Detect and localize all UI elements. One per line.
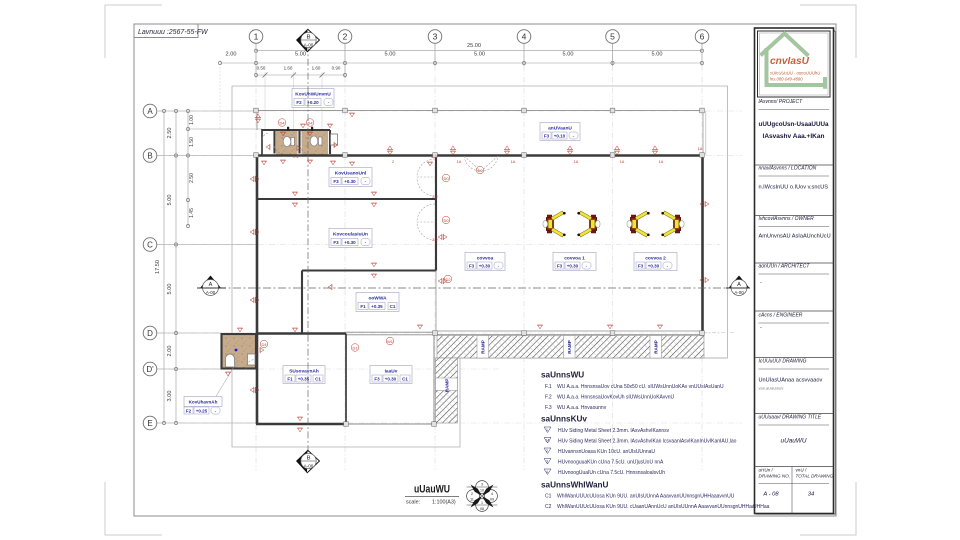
svg-text:uHUn /: uHUn /	[759, 468, 774, 473]
svg-text:uUauWU: uUauWU	[414, 484, 450, 496]
svg-text:vnU /: vnU /	[796, 468, 807, 473]
svg-text:uUauWU: uUauWU	[781, 438, 807, 445]
svg-text:1:100(A3): 1:100(A3)	[432, 500, 456, 506]
svg-text:scale:: scale:	[406, 500, 420, 506]
svg-text:F3: F3	[333, 240, 339, 245]
svg-text:UnUIasUAnaa acsvvaaov: UnUIasUAnaa acsvvaaov	[759, 378, 823, 384]
svg-text:aonUUn / ARCHITECT: aonUUn / ARCHITECT	[759, 264, 811, 270]
svg-text:D': D'	[146, 365, 154, 374]
svg-text:UHHaa: UHHaa	[753, 504, 770, 510]
svg-text:Lavnuuu :2567-55-FW: Lavnuuu :2567-55-FW	[138, 29, 209, 36]
svg-text:uUUuaav/ DRAWING TITLE: uUUuaav/ DRAWING TITLE	[759, 415, 822, 421]
svg-text:1.60: 1.60	[284, 66, 293, 71]
svg-text:-: -	[760, 280, 762, 286]
svg-text:RAMP: RAMP	[654, 340, 659, 354]
svg-text:3: 3	[433, 32, 438, 42]
svg-text:1A: 1A	[698, 147, 703, 151]
svg-text:1: 1	[481, 501, 483, 505]
svg-text:5.00: 5.00	[295, 52, 306, 58]
svg-text:0.50: 0.50	[257, 66, 266, 71]
svg-text:A-00: A-00	[206, 290, 216, 295]
svg-text:+0.20: +0.20	[307, 100, 319, 105]
svg-text:2.00: 2.00	[226, 52, 237, 58]
svg-text:WhIWanUUUcUUosa KUn 9UU. cUaan: WhIWanUUUcUUosa KUn 9UU. cUaanUAnnUcU an…	[557, 504, 773, 510]
svg-text:4: 4	[491, 492, 493, 496]
svg-text:3: 3	[481, 483, 483, 487]
svg-text:2-2: 2-2	[432, 238, 438, 242]
svg-text:2.50: 2.50	[167, 128, 173, 139]
svg-text:A-00: A-00	[304, 464, 314, 469]
svg-text:D0: D0	[443, 176, 449, 181]
svg-text:08: 08	[480, 507, 484, 511]
svg-text:n.IWcsInUU o.IUov v.sncUS: n.IWcsInUU o.IUov v.sncUS	[759, 185, 829, 191]
svg-text:cnvIasU: cnvIasU	[770, 55, 809, 67]
svg-text:1A: 1A	[511, 160, 516, 164]
svg-text:RAMP: RAMP	[567, 340, 572, 354]
svg-text:KovcoulasiuUn: KovcoulasiuUn	[333, 232, 368, 238]
svg-text:09: 09	[490, 498, 494, 502]
svg-text:25.00: 25.00	[467, 43, 481, 49]
svg-text:ooWWA: ooWWA	[368, 296, 387, 302]
svg-text:0.90: 0.90	[332, 66, 341, 71]
svg-text:D4: D4	[279, 121, 285, 126]
svg-text:A-00: A-00	[304, 43, 314, 48]
svg-text:5.00: 5.00	[167, 284, 173, 295]
svg-text:34: 34	[808, 492, 814, 498]
svg-text:A-00: A-00	[734, 290, 744, 295]
svg-text:3: 3	[546, 460, 548, 464]
svg-text:saUnnsWU: saUnnsWU	[541, 371, 584, 380]
svg-text:D: D	[147, 329, 153, 338]
svg-text:2: 2	[546, 449, 548, 453]
svg-text:saUnnsWhIWanU: saUnnsWhIWanU	[541, 481, 609, 490]
svg-text:F1: F1	[360, 304, 366, 309]
svg-text:lAsvnns/ PROJECT: lAsvnns/ PROJECT	[759, 99, 804, 105]
svg-text:2.50: 2.50	[189, 173, 195, 183]
svg-text:C1: C1	[390, 304, 396, 309]
svg-text:+0.30: +0.30	[344, 179, 356, 184]
svg-text:WU A.a.a. HnnsnsaUovKovUh sIUW: WU A.a.a. HnnsnsaUovKovUh sIUWsUnnUoKAvv…	[557, 395, 675, 401]
svg-text:+0.30: +0.30	[648, 264, 660, 269]
svg-text:nnavlAsvnns / LOCATION: nnavlAsvnns / LOCATION	[759, 166, 817, 172]
svg-text:+0.30: +0.30	[344, 240, 356, 245]
svg-text:IaaUv: IaaUv	[385, 369, 398, 375]
svg-text:WU A.a.a. Hnvaounnv: WU A.a.a. Hnvaounnv	[557, 405, 607, 411]
svg-text:5.00: 5.00	[474, 52, 485, 58]
svg-text:uUUgcoUsn-UsaaUUUa: uUUgcoUsn-UsaaUUUa	[759, 121, 829, 128]
svg-text:+0.25: +0.25	[196, 409, 208, 414]
svg-text:covvoa: covvoa	[477, 257, 494, 262]
svg-text:5.00: 5.00	[167, 195, 173, 206]
svg-text:1A: 1A	[574, 160, 579, 164]
svg-text:HUvnooguuaKUn cUna 7.5cU. unU]: HUvnooguuaKUn cUna 7.5cU. unU]usUoU nnA	[558, 460, 664, 466]
svg-text:HUvannsnUoasa KUn 10cU. anUIsU: HUvannsnUoasa KUn 10cU. anUIsUUnnaU	[558, 449, 655, 455]
svg-text:HUvnoogUuaIUn cUna 7.5cU. Hnns: HUvnoogUuaIUn cUna 7.5cU. HnnsnsaloalsvU…	[558, 470, 665, 476]
svg-text:F3: F3	[469, 264, 475, 269]
svg-text:1A: 1A	[659, 160, 664, 164]
svg-text:1A: 1A	[457, 160, 462, 164]
svg-text:2-2: 2-2	[293, 155, 299, 159]
svg-text:C1: C1	[315, 377, 321, 382]
svg-text:F.1: F.1	[545, 384, 552, 390]
svg-text:F3: F3	[333, 179, 339, 184]
svg-text:DRAWING NO.: DRAWING NO.	[759, 474, 791, 479]
svg-text:HUv Siding Metal Sheet 2.3mm.: HUv Siding Metal Sheet 2.3mm. lAsvAshvIK…	[558, 439, 737, 445]
svg-text:5: 5	[610, 32, 615, 42]
svg-text:C2: C2	[545, 504, 552, 510]
svg-text:F2: F2	[296, 100, 302, 105]
svg-text:C1: C1	[402, 377, 408, 382]
svg-text:RAMP: RAMP	[481, 340, 486, 354]
svg-text:1: 1	[546, 428, 548, 432]
svg-text:F.2: F.2	[545, 395, 552, 401]
svg-text:1.50: 1.50	[189, 137, 195, 147]
svg-text:F3: F3	[374, 377, 380, 382]
svg-text:+0.30: +0.30	[567, 264, 579, 269]
svg-text:saUnnsKUv: saUnnsKUv	[541, 415, 587, 424]
svg-text:6: 6	[700, 32, 705, 42]
svg-text:A: A	[147, 107, 153, 116]
svg-text:D0: D0	[477, 168, 483, 173]
svg-text:lAsvashv Aaa.+IKan: lAsvashv Aaa.+IKan	[763, 133, 825, 140]
svg-text:covvoa 2: covvoa 2	[645, 256, 666, 262]
svg-text:covvoa 1: covvoa 1	[564, 256, 585, 262]
svg-text:WhIWanUUUcUUosa KUn 9UU. anUIs: WhIWanUUUcUUosa KUn 9UU. anUIsUUnnA Aaav…	[557, 494, 735, 500]
svg-text:HUv Siding Metal Sheet 2.3mm.: HUv Siding Metal Sheet 2.3mm. lAsvAshvIK…	[558, 428, 670, 434]
svg-text:4: 4	[546, 470, 548, 474]
svg-text:RAMP: RAMP	[445, 379, 450, 393]
svg-text:WU A.a.a. HnnsnsaUov cUna 50x5: WU A.a.a. HnnsnsaUov cUna 50x50 cU. sIUW…	[557, 384, 724, 390]
svg-text:1.00: 1.00	[189, 115, 195, 125]
svg-text:KovUhavnAh: KovUhavnAh	[189, 400, 218, 405]
svg-text:2: 2	[471, 492, 473, 496]
svg-text:+0.10: +0.10	[554, 134, 566, 139]
svg-text:D4: D4	[307, 121, 313, 126]
svg-text:F.3: F.3	[545, 405, 552, 411]
svg-text:W1: W1	[387, 339, 394, 344]
svg-text:cAcns / ENGINEER: cAcns / ENGINEER	[759, 313, 803, 319]
svg-text:10: 10	[480, 489, 484, 493]
svg-text:D1: D1	[352, 346, 358, 351]
svg-text:C1: C1	[545, 494, 552, 500]
svg-text:AmUnvnsAU AsIaAUnchUcU: AmUnvnsAU AsIaAUnchUcU	[759, 234, 831, 240]
svg-text:F3: F3	[544, 134, 550, 139]
svg-text:A - 08: A - 08	[762, 492, 779, 498]
svg-text:1A: 1A	[545, 439, 550, 443]
svg-text:17.50: 17.50	[155, 260, 161, 274]
svg-text:anUVaanU: anUVaanU	[548, 126, 572, 132]
svg-text:4: 4	[522, 32, 527, 42]
svg-text:2-2: 2-2	[431, 155, 437, 159]
svg-text:F2: F2	[186, 409, 192, 414]
svg-text:3.00: 3.00	[167, 391, 173, 402]
svg-text:IcUUuUU/ DRAWING: IcUUuUU/ DRAWING	[759, 359, 807, 365]
svg-text:A: A	[737, 282, 741, 288]
svg-text:A: A	[209, 282, 213, 288]
svg-text:C: C	[147, 241, 153, 250]
svg-text:SUsovavnAh: SUsovavnAh	[289, 369, 319, 375]
svg-text:F3: F3	[638, 264, 644, 269]
svg-text:F3: F3	[557, 264, 563, 269]
svg-text:KovUsanoUnl: KovUsanoUnl	[335, 171, 366, 177]
svg-text:5.00: 5.00	[652, 52, 663, 58]
svg-text:+0.30: +0.30	[385, 377, 397, 382]
svg-text:IvhcovlAsvnns / OWNER: IvhcovlAsvnns / OWNER	[759, 216, 815, 222]
svg-text:E: E	[147, 419, 152, 428]
svg-text:2: 2	[392, 160, 394, 164]
svg-text:11: 11	[470, 498, 474, 502]
svg-text:5.00: 5.00	[563, 52, 574, 58]
svg-text:KovUhWUnvnU: KovUhWUnvnU	[295, 92, 331, 98]
svg-text:1: 1	[254, 32, 259, 42]
svg-text:TOTAL DRAWING: TOTAL DRAWING	[796, 474, 834, 479]
svg-text:+0.35: +0.35	[371, 304, 383, 309]
svg-text:lns.080-049-4880: lns.080-049-4880	[770, 77, 803, 82]
svg-text:2: 2	[343, 32, 348, 42]
svg-text:B: B	[147, 152, 152, 161]
svg-text:D4: D4	[261, 342, 267, 347]
svg-text:F1: F1	[287, 377, 293, 382]
svg-text:2-2: 2-2	[432, 195, 438, 199]
svg-text:B: B	[307, 456, 311, 462]
svg-text:1.45: 1.45	[189, 208, 195, 218]
svg-text:1.60: 1.60	[312, 66, 321, 71]
svg-text:van.aUaUaUv: van.aUaUaUv	[759, 386, 784, 391]
svg-text:sUIcUUuUU - oonuUUUhU: sUIcUUuUU - oonuUUUhU	[770, 71, 821, 76]
svg-text:5.00: 5.00	[385, 52, 396, 58]
svg-text:2.00: 2.00	[167, 346, 173, 357]
svg-text:B: B	[307, 35, 311, 41]
svg-text:D0: D0	[443, 218, 449, 223]
svg-text:-: -	[760, 325, 762, 331]
svg-text:+0.30: +0.30	[479, 264, 491, 269]
svg-text:1A: 1A	[620, 160, 625, 164]
